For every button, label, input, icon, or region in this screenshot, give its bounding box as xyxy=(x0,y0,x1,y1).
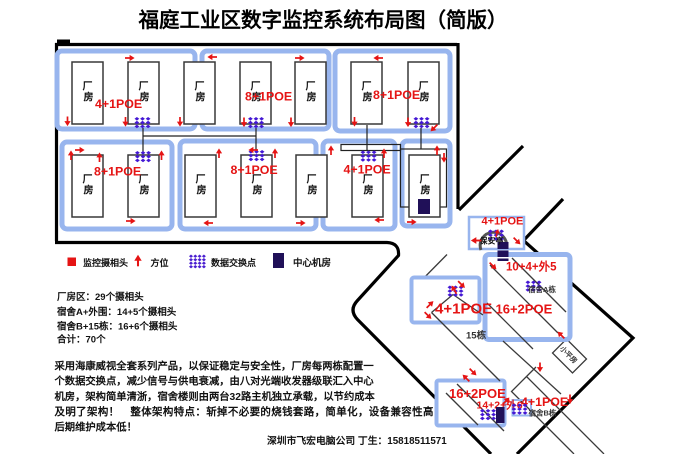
svg-text:宿舍A栋: 宿舍A栋 xyxy=(528,284,556,294)
svg-text:及明了架构！ 整体架构特点：斩掉不必要的烧钱套路，简单化，设: 及明了架构！ 整体架构特点：斩掉不必要的烧钱套路，简单化，设备兼容性高 xyxy=(55,405,434,418)
svg-text:8+1POE: 8+1POE xyxy=(231,163,278,177)
svg-text:福庭工业区数字监控系统布局图（简版）: 福庭工业区数字监控系统布局图（简版） xyxy=(138,8,508,32)
svg-text:宿舍B栋: 宿舍B栋 xyxy=(529,408,557,418)
svg-text:数据交换点: 数据交换点 xyxy=(211,257,256,268)
svg-text:宿舍B+15栋：16+6个摄相头: 宿舍B+15栋：16+6个摄相头 xyxy=(57,320,178,332)
svg-text:宿舍A+外围：14+5个摄相头: 宿舍A+外围：14+5个摄相头 xyxy=(57,306,177,318)
svg-text:监控摄相头: 监控摄相头 xyxy=(83,257,128,268)
svg-text:厂房区：29个摄相头: 厂房区：29个摄相头 xyxy=(57,291,144,303)
svg-text:4+1POE: 4+1POE xyxy=(95,97,142,111)
svg-text:后期维护成本低！: 后期维护成本低！ xyxy=(55,420,137,433)
svg-text:4+1POE: 4+1POE xyxy=(482,216,524,228)
svg-text:机房，架构简单清浙，宿舍楼则由两台32路主机独立承载，以节约: 机房，架构简单清浙，宿舍楼则由两台32路主机独立承载，以节约成本 xyxy=(55,390,376,403)
svg-text:4+1POE: 4+1POE xyxy=(344,163,391,177)
svg-text:4+1POE: 4+1POE xyxy=(521,395,568,409)
svg-text:8+1POE: 8+1POE xyxy=(373,88,420,102)
svg-text:方位: 方位 xyxy=(151,257,169,268)
svg-text:8+1POE: 8+1POE xyxy=(245,90,292,104)
svg-text:10+4+外5: 10+4+外5 xyxy=(506,260,557,274)
svg-text:采用海康威视全套系列产品，以保证稳定与安全性，厂房每两栋配置: 采用海康威视全套系列产品，以保证稳定与安全性，厂房每两栋配置一 xyxy=(54,360,375,373)
svg-text:合计：70个: 合计：70个 xyxy=(57,334,106,346)
svg-text:深圳市飞宏电脑公司 丁生：15818511571: 深圳市飞宏电脑公司 丁生：15818511571 xyxy=(267,434,447,447)
svg-text:保安亭: 保安亭 xyxy=(479,236,504,246)
svg-text:16+2POE: 16+2POE xyxy=(496,302,553,317)
svg-text:15栋: 15栋 xyxy=(466,330,487,342)
svg-text:8+1POE: 8+1POE xyxy=(94,165,141,179)
svg-text:4+1POE: 4+1POE xyxy=(435,301,492,318)
svg-text:中心机房: 中心机房 xyxy=(293,257,331,269)
svg-text:个数据交换点，减少信号与供电衰减，由八对光端收发器级联汇入中: 个数据交换点，减少信号与供电衰减，由八对光端收发器级联汇入中心 xyxy=(54,375,375,388)
